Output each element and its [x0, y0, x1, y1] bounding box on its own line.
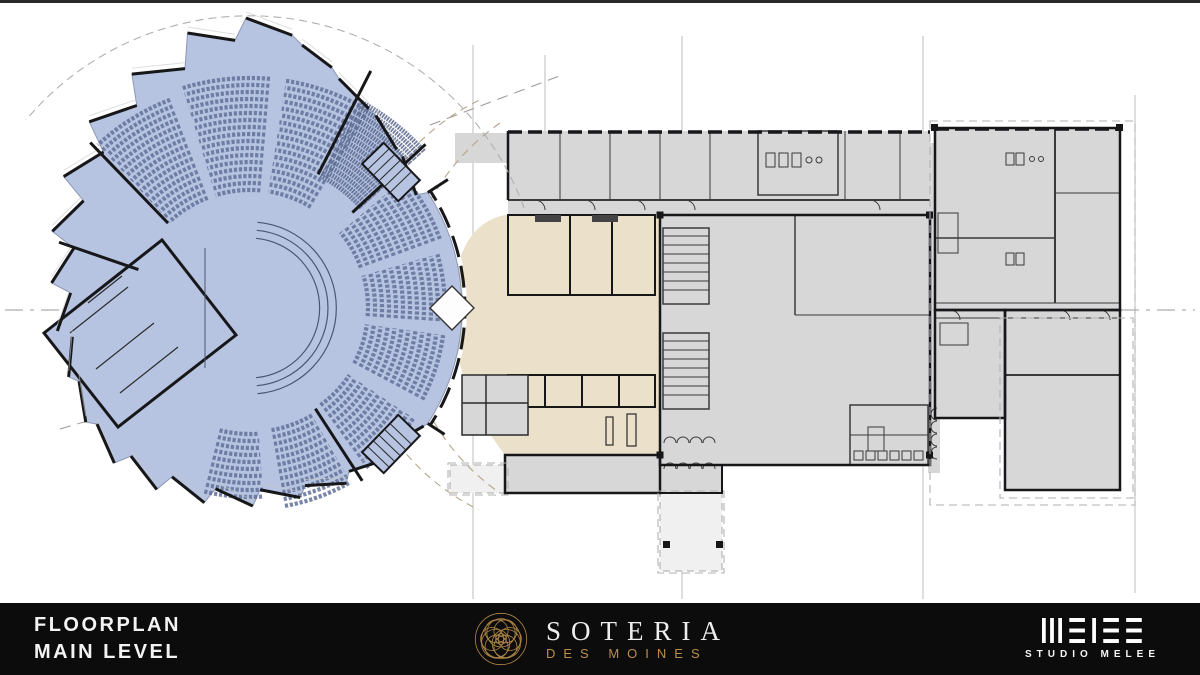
floorplan-drawing	[0, 3, 1200, 603]
brand-name: SOTERIA	[546, 618, 730, 645]
studio-lockup: MELEE STUDIO MELEE	[1025, 618, 1160, 660]
melee-bars-icon	[1042, 618, 1142, 643]
slide-title-line1: FLOORPLAN	[34, 612, 181, 639]
brand-lockup: SOTERIA DES MOINES	[470, 608, 730, 670]
auditorium-zone	[44, 12, 474, 506]
lobby-sw-rooms	[462, 375, 528, 435]
studio-label: STUDIO MELEE	[1025, 649, 1160, 660]
slide-title: FLOORPLAN MAIN LEVEL	[34, 612, 181, 666]
slide-title-line2: MAIN LEVEL	[34, 639, 181, 666]
rosette-icon	[470, 608, 532, 670]
floorplan-area	[0, 3, 1200, 603]
brand-tagline: DES MOINES	[546, 647, 730, 660]
presentation-slide: FLOORPLAN MAIN LEVEL SOTERIA DES MOINES	[0, 0, 1200, 675]
footer-bar: FLOORPLAN MAIN LEVEL SOTERIA DES MOINES	[0, 603, 1200, 675]
